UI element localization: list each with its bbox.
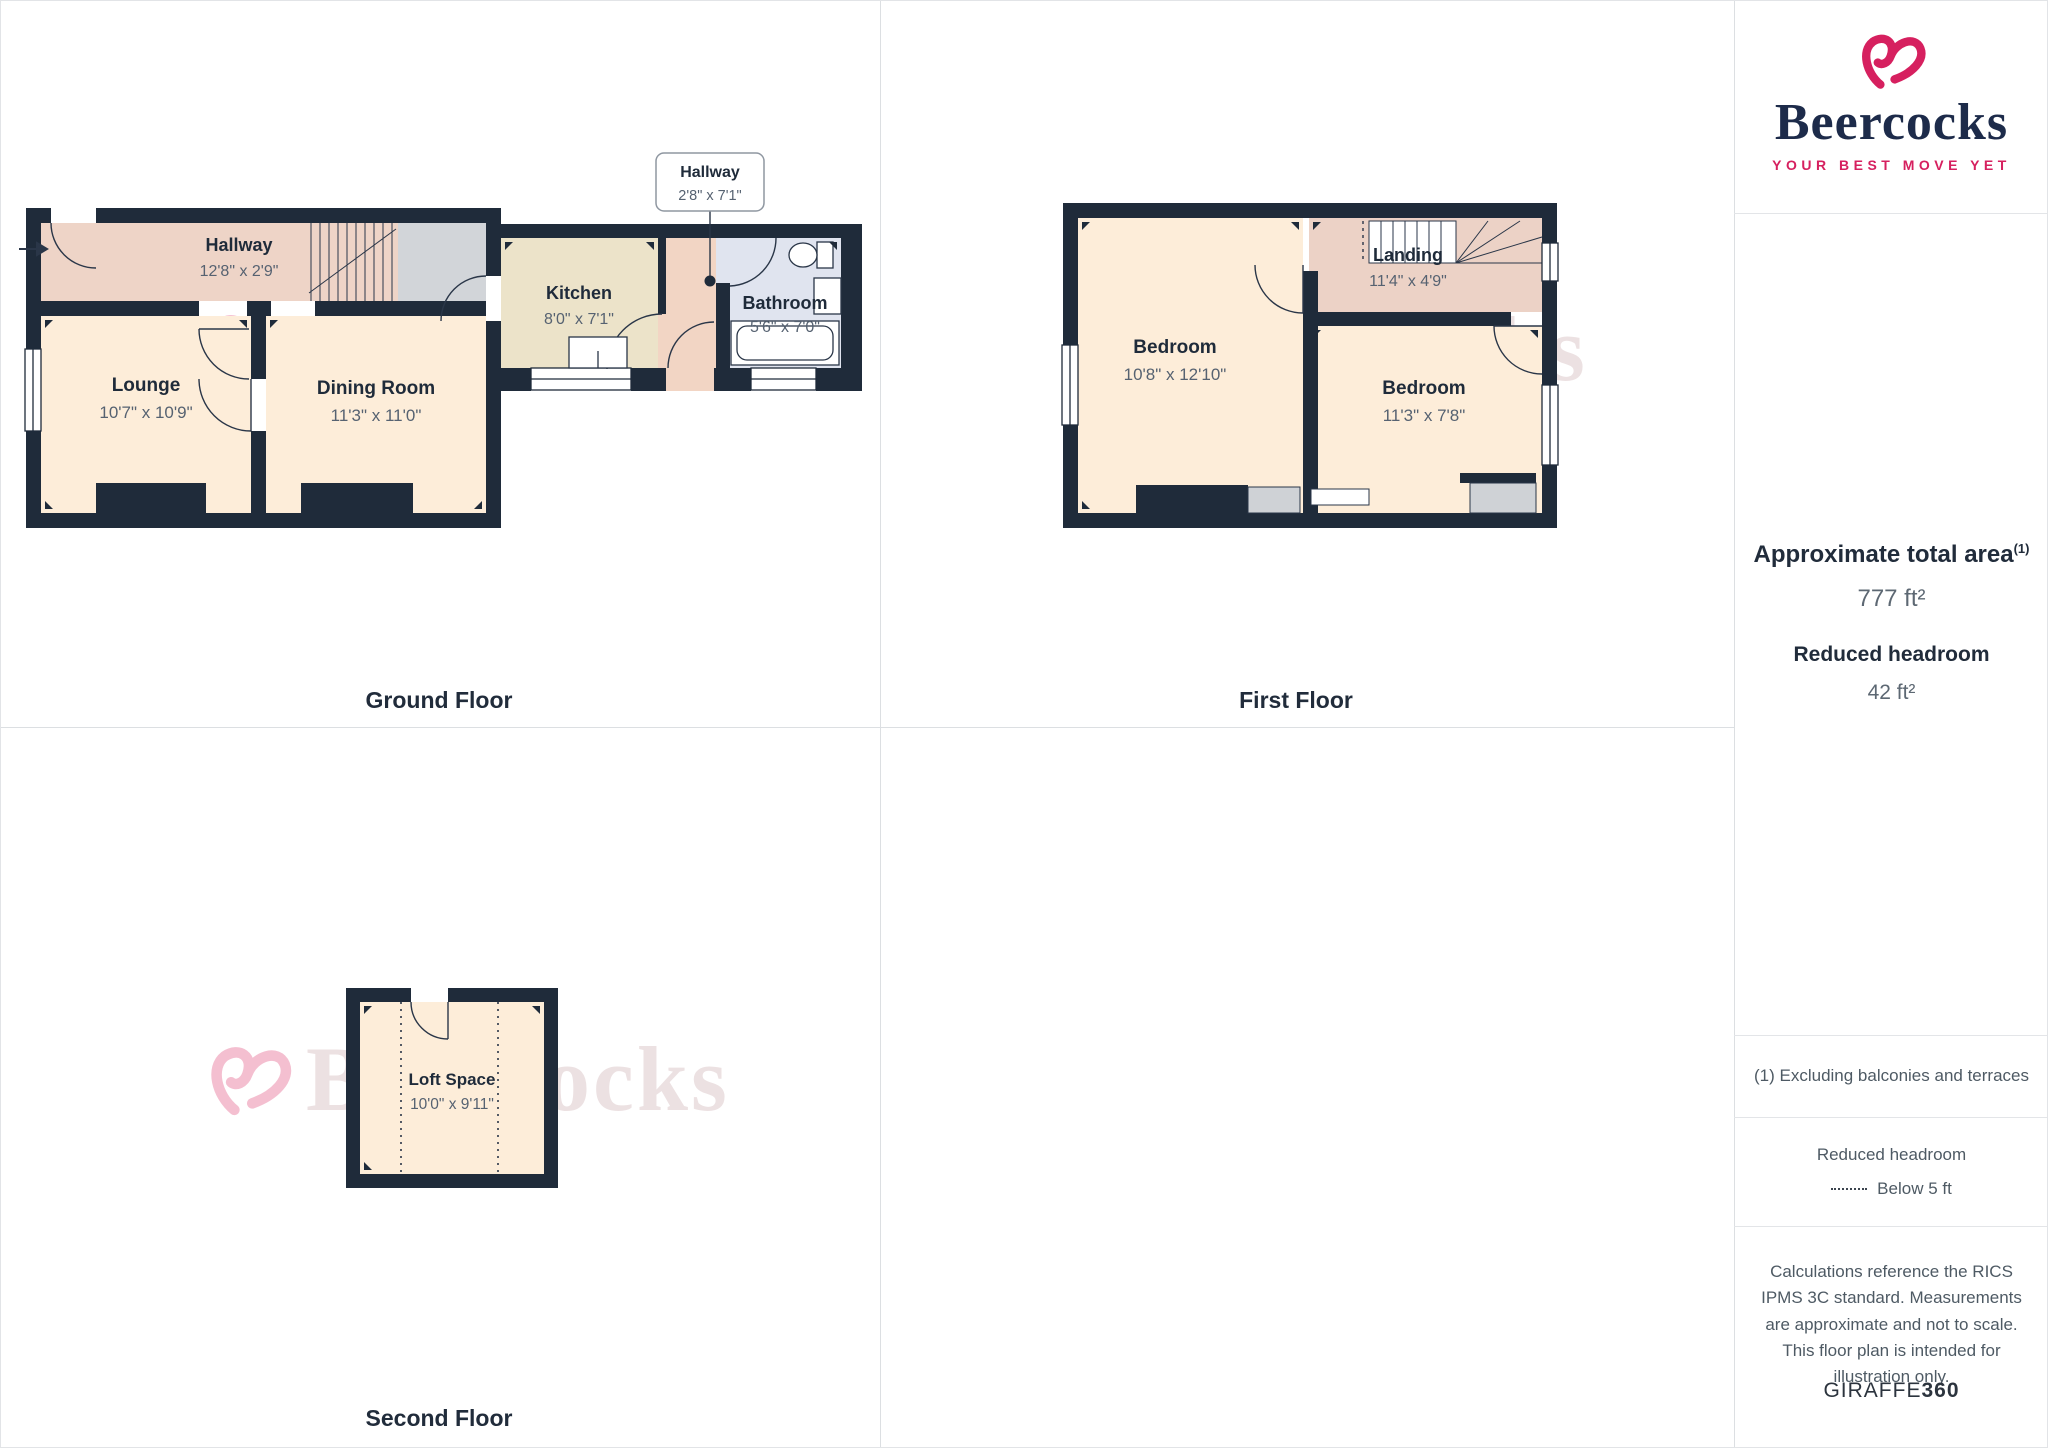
brand-heart-icon	[1858, 29, 1926, 91]
legend-heading: Reduced headroom	[1817, 1145, 1966, 1165]
landing-name: Landing	[1373, 245, 1443, 265]
first-floor-plan: Bedroom 10'8" x 12'10" Landing 11'4" x 4…	[1056, 191, 1596, 541]
area-footnote-marker: (1)	[2014, 541, 2030, 556]
sidebar-section-line	[1734, 213, 2048, 214]
second-floor-label: Second Floor	[366, 1405, 513, 1432]
ground-floor-plan: Hallway 2'8" x 7'1" Hallway 12'8" x 2'9"…	[19, 121, 869, 541]
second-floor-plan: Loft Space 10'0" x 9'11"	[331, 976, 591, 1216]
headroom-heading: Reduced headroom	[1734, 643, 2048, 667]
landing-dims: 11'4" x 4'9"	[1369, 273, 1447, 290]
area-footnote: (1) Excluding balconies and terraces	[1734, 1035, 2048, 1117]
ground-floor-label: Ground Floor	[366, 687, 513, 714]
bedroom2-name: Bedroom	[1382, 378, 1465, 399]
lounge-dims: 10'7" x 10'9"	[99, 403, 192, 422]
hallway2-name: Hallway	[680, 164, 740, 181]
horizontal-divider	[1, 727, 1734, 728]
sidebar-left-border	[1734, 1, 1735, 1448]
kitchen-sink	[569, 337, 627, 368]
loft-name: Loft Space	[409, 1070, 496, 1089]
area-summary: Approximate total area(1) 777 ft² Reduce…	[1734, 541, 2048, 705]
bathroom-name: Bathroom	[743, 293, 828, 313]
bedroom2-dims: 11'3" x 7'8"	[1383, 406, 1466, 425]
kitchen-name: Kitchen	[546, 283, 612, 303]
provider-suffix: 360	[1921, 1379, 1959, 1402]
area-value: 777 ft²	[1734, 585, 2048, 613]
reduced-headroom-legend: Reduced headroom Below 5 ft	[1734, 1117, 2048, 1226]
dining-dims: 11'3" x 11'0"	[331, 406, 422, 425]
lounge-name: Lounge	[112, 375, 181, 396]
provider-logo: GIRAFFE360	[1734, 1379, 2048, 1403]
watermark-heart-icon	[206, 1040, 292, 1118]
kitchen-dims: 8'0" x 7'1"	[544, 311, 614, 328]
info-sidebar: Beercocks YOUR BEST MOVE YET Approximate…	[1734, 1, 2048, 1448]
ground-hallway-name: Hallway	[205, 235, 272, 255]
hallway2-dims: 2'8" x 7'1"	[678, 188, 741, 204]
provider-name: GIRAFFE	[1823, 1379, 1921, 1402]
area-heading-text: Approximate total area	[1754, 541, 2014, 568]
legend-row: Below 5 ft	[1831, 1179, 1952, 1199]
sidebar-section-line	[1734, 1226, 2048, 1227]
disclaimer-text: Calculations reference the RICS IPMS 3C …	[1756, 1259, 2027, 1391]
vertical-divider	[880, 1, 881, 1448]
dining-name: Dining Room	[317, 378, 435, 399]
headroom-value: 42 ft²	[1734, 681, 2048, 705]
bedroom1-dims: 10'8" x 12'10"	[1124, 365, 1227, 384]
brand-tagline: YOUR BEST MOVE YET	[1734, 157, 2048, 173]
loft-dims: 10'0" x 9'11"	[410, 1096, 494, 1113]
legend-item-label: Below 5 ft	[1877, 1179, 1952, 1199]
brand-logo: Beercocks YOUR BEST MOVE YET	[1734, 29, 2048, 173]
first-floor-label: First Floor	[1239, 687, 1353, 714]
bathroom-dims: 5'6" x 7'0"	[750, 319, 820, 336]
floorplan-page: Beercocks	[0, 0, 2048, 1448]
area-heading: Approximate total area(1)	[1734, 541, 2048, 569]
bedroom1-name: Bedroom	[1133, 337, 1216, 358]
brand-name: Beercocks	[1734, 96, 2048, 151]
dotted-line-sample	[1831, 1188, 1867, 1190]
ground-hallway-dims: 12'8" x 2'9"	[200, 263, 279, 280]
